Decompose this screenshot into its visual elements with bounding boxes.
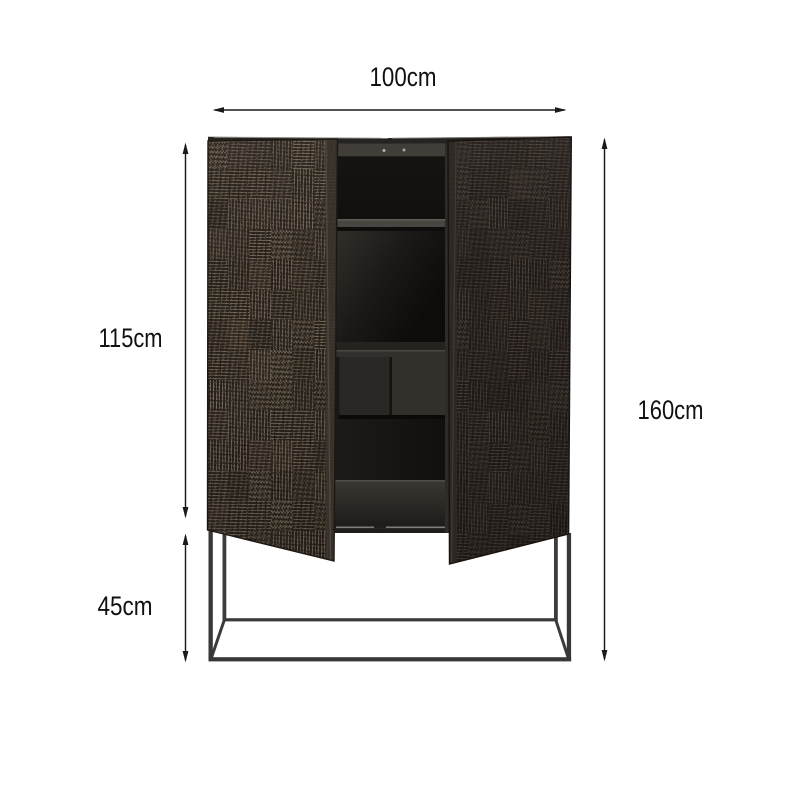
svg-text:115cm: 115cm [99, 323, 163, 353]
svg-text:100cm: 100cm [370, 62, 437, 92]
svg-text:45cm: 45cm [98, 591, 153, 621]
svg-text:160cm: 160cm [638, 395, 704, 425]
